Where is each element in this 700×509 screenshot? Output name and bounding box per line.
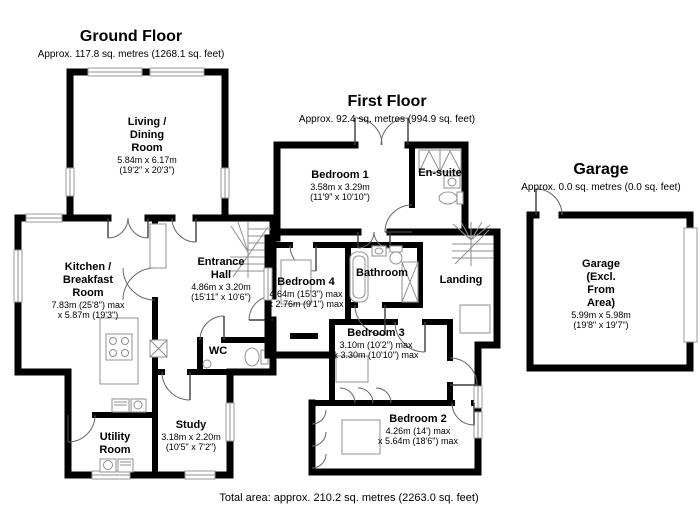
room-label-bedroom3: Bedroom 3 3.10m (10'2") max x 3.30m (10'… xyxy=(334,327,419,360)
room-label-entrance-hall: Entrance Hall 4.86m x 3.20m (15'11" x 10… xyxy=(191,256,251,302)
garage-door-icon xyxy=(684,228,697,342)
room-dim-metric: 3.18m x 2.20m xyxy=(161,432,221,442)
room-name: Bedroom 2 xyxy=(378,413,458,426)
room-label-living-dining: Living / Dining Room 5.84m x 6.17m (19'2… xyxy=(117,116,177,175)
room-name: Utility Room xyxy=(99,431,130,457)
first-floor-subtitle: Approx. 92.4 sq. metres (994.9 sq. feet) xyxy=(299,114,475,125)
total-area-text: Total area: approx. 210.2 sq. metres (22… xyxy=(219,492,478,504)
room-label-wc: WC xyxy=(209,345,227,358)
room-name: Bathroom xyxy=(356,267,408,280)
room-name: Entrance Hall xyxy=(191,256,251,282)
room-name: Bedroom 3 xyxy=(334,327,419,340)
room-dim-imperial: x 5.87m (19'3") xyxy=(52,310,125,320)
room-name: Kitchen / Breakfast Room xyxy=(52,261,125,300)
first-floor-title: First Floor xyxy=(347,93,426,111)
gf-doors xyxy=(68,218,273,442)
room-label-utility: Utility Room xyxy=(99,431,130,457)
room-name: Study xyxy=(161,419,221,432)
room-dim-imperial: (15'11" x 10'6") xyxy=(191,292,251,302)
room-name: WC xyxy=(209,345,227,358)
room-name: En-suite xyxy=(418,167,461,180)
room-dim-imperial: (10'5" x 7'2") xyxy=(161,442,221,452)
gf-kitchen-appliance-icons xyxy=(112,399,146,412)
room-label-bedroom1: Bedroom 1 3.58m x 3.29m (11'9" x 10'10") xyxy=(310,169,370,202)
room-dim-imperial: (19'2" x 20'3") xyxy=(117,165,177,175)
room-dim-metric: 3.58m x 3.29m xyxy=(310,182,370,192)
room-dim-metric: 5.84m x 6.17m xyxy=(117,155,177,165)
room-name: Garage (Excl. From Area) xyxy=(571,258,631,310)
room-label-ensuite: En-suite xyxy=(418,167,461,180)
room-dim-metric: 5.99m x 5.98m xyxy=(571,310,631,320)
room-label-study: Study 3.18m x 2.20m (10'5" x 7'2") xyxy=(161,419,221,452)
room-label-bathroom: Bathroom xyxy=(356,267,408,280)
garage-subtitle: Approx. 0.0 sq. metres (0.0 sq. feet) xyxy=(521,182,681,193)
room-dim-imperial: x 3.30m (10'10") max xyxy=(334,350,419,360)
room-name: Landing xyxy=(440,274,483,287)
gf-flue-icon xyxy=(150,340,167,357)
room-label-bedroom4: Bedroom 4 4.64m (15'3") max x 2.76m (9'1… xyxy=(269,276,344,309)
gf-kitchen-island-icon xyxy=(100,318,138,384)
garage-title: Garage xyxy=(573,161,628,179)
room-dim-imperial: (19'8" x 19'7") xyxy=(571,320,631,330)
room-name: Bedroom 1 xyxy=(310,169,370,182)
room-name: Bedroom 4 xyxy=(269,276,344,289)
room-dim-metric: 4.26m (14') max xyxy=(378,426,458,436)
room-dim-imperial: (11'9" x 10'10") xyxy=(310,192,370,202)
ground-floor-subtitle: Approx. 117.8 sq. metres (1268.1 sq. fee… xyxy=(38,49,225,60)
gf-hall-cupboard xyxy=(150,224,166,268)
room-label-garage: Garage (Excl. From Area) 5.99m x 5.98m (… xyxy=(571,258,631,330)
room-label-landing: Landing xyxy=(440,274,483,287)
floorplan-page: Ground Floor Approx. 117.8 sq. metres (1… xyxy=(0,0,700,509)
room-label-kitchen: Kitchen / Breakfast Room 7.83m (25'8") m… xyxy=(52,261,125,320)
room-dim-metric: 4.64m (15'3") max xyxy=(269,289,344,299)
gf-utility-appliance-icons xyxy=(100,459,133,472)
room-dim-imperial: x 2.76m (9'1") max xyxy=(269,299,344,309)
room-dim-metric: 3.10m (10'2") max xyxy=(334,340,419,350)
room-label-bedroom2: Bedroom 2 4.26m (14') max x 5.64m (18'6"… xyxy=(378,413,458,446)
room-dim-imperial: x 5.64m (18'6") max xyxy=(378,436,458,446)
room-name: Living / Dining Room xyxy=(117,116,177,155)
room-dim-metric: 7.83m (25'8") max xyxy=(52,300,125,310)
ground-floor-title: Ground Floor xyxy=(80,28,182,46)
room-dim-metric: 4.86m x 3.20m xyxy=(191,282,251,292)
